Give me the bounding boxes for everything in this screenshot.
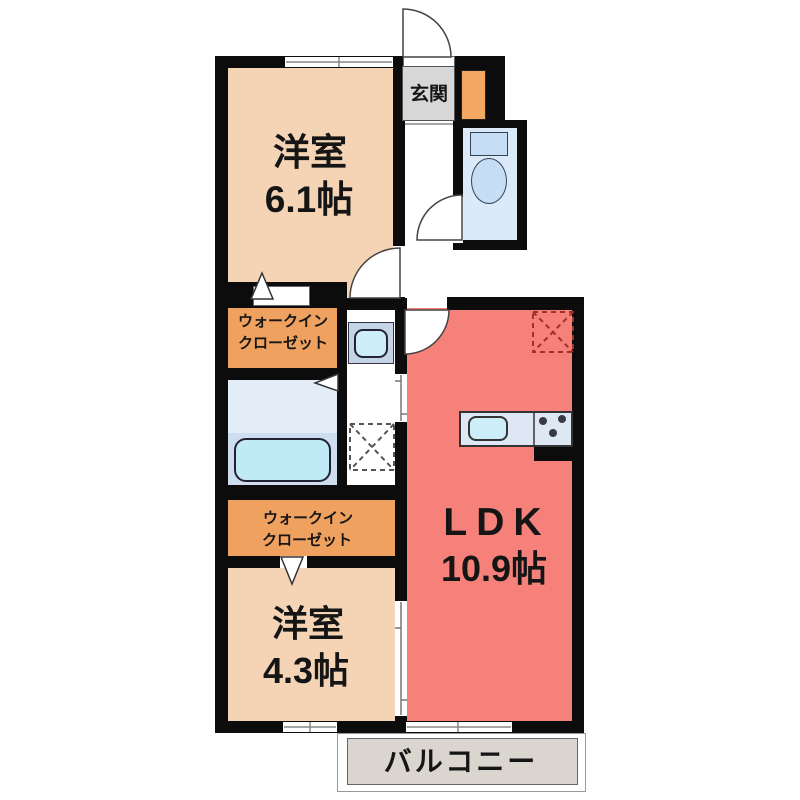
ldk-right-wall <box>572 297 584 733</box>
outer-wall-left <box>215 56 228 733</box>
stove-burner-icon <box>539 417 547 425</box>
entrance-label: 玄関 <box>410 85 448 104</box>
kitchen-counter-wall <box>534 447 584 461</box>
wic2-door-opening <box>280 556 307 568</box>
bedroom1-door-opening <box>393 246 405 297</box>
bath-wic2-wall <box>215 485 407 500</box>
shoe-cabinet <box>461 70 486 120</box>
ldk-top-wall <box>447 297 584 310</box>
toilet-tank-icon <box>470 132 508 156</box>
bedroom1-window <box>285 57 393 67</box>
bathtub-icon <box>234 438 331 482</box>
floor-plan: 玄関 洋室 6.1帖 ウォークイン クローゼット ウォークイン クローゼット L… <box>0 0 800 800</box>
balcony-label: バルコニー <box>384 748 538 776</box>
bedroom2-ldk-sliding-door <box>395 601 407 716</box>
wic2-floor <box>228 498 395 558</box>
wic2-bedroom2-wall <box>215 556 407 568</box>
toilet-door-opening <box>453 197 463 243</box>
bedroom1-name-label: 洋室 <box>273 134 347 171</box>
wic1-label-line1: ウォークイン <box>238 314 328 329</box>
wic1-label-line2: クローゼット <box>238 336 328 351</box>
kitchen-sink-icon <box>468 416 508 441</box>
stove-burner-icon <box>558 415 566 423</box>
bedroom2-window <box>283 722 337 732</box>
washroom-left-wall <box>337 298 347 488</box>
stove-burner-icon <box>549 429 557 437</box>
bedroom1-size-label: 6.1帖 <box>265 181 353 218</box>
wic2-label-line1: ウォークイン <box>263 511 353 526</box>
ldk-name-label: LDK <box>443 503 550 542</box>
ldk-size-label: 10.9帖 <box>441 551 547 587</box>
bathroom-floor-upper <box>228 378 337 435</box>
wic2-label-line2: クローゼット <box>262 533 352 548</box>
wic1-bath-wall <box>215 368 347 380</box>
wic1-door-opening <box>253 286 310 306</box>
toilet-bowl-icon <box>471 158 507 204</box>
entrance-door-arc-icon <box>403 9 451 57</box>
washbasin-sink-icon <box>354 329 388 358</box>
bedroom2-floor <box>228 566 395 723</box>
ldk-balcony-window <box>406 722 512 732</box>
washroom-door-opening <box>395 374 407 422</box>
bedroom2-name-label: 洋室 <box>272 606 344 642</box>
bedroom2-size-label: 4.3帖 <box>263 653 349 689</box>
